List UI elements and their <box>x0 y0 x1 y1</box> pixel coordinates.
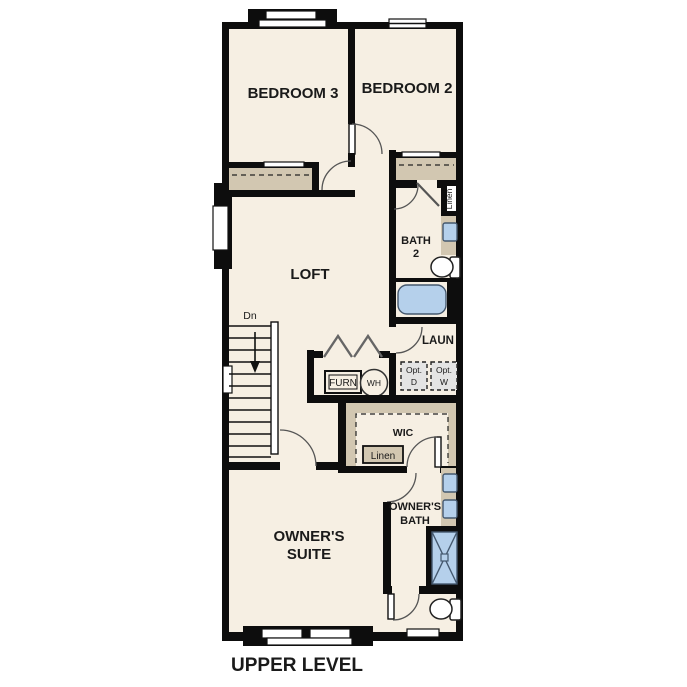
bedroom3-window-sill <box>259 20 326 27</box>
bedroom3-label: BEDROOM 3 <box>248 85 339 102</box>
bath2-label-line2: 2 <box>413 248 419 260</box>
bedroom2-closet-bypass-door <box>402 152 440 157</box>
bath2-label-line1: BATH <box>401 235 431 247</box>
wic-door-panel <box>435 437 441 467</box>
toilet-room-top-wall <box>419 586 463 594</box>
shower-drain <box>441 554 448 561</box>
wic-bottom-wall-left <box>338 466 407 473</box>
owners-suite-top-wall-left <box>222 462 280 470</box>
toilet-room-door-panel <box>388 594 394 619</box>
bedroom3-closet-side-wall <box>312 162 319 194</box>
stairs-window <box>223 366 232 393</box>
bedroom3-window <box>266 11 316 19</box>
owners-bath-sink-2 <box>443 500 457 518</box>
stairs-down-label: Dn <box>243 310 257 322</box>
bedroom3-bottom-wall <box>222 190 355 197</box>
bedroom3-closet <box>229 168 312 190</box>
toilet-room-window <box>407 629 439 637</box>
owners-bath-label-line1: OWNER'S <box>389 501 441 513</box>
bath2-top-wall-left <box>396 180 417 188</box>
optional-washer-label-line1: Opt. <box>436 365 452 375</box>
floor-plan-canvas: BEDROOM 3 BEDROOM 2 LOFT BATH 2 LAUN WIC… <box>0 0 687 687</box>
bath2-tub <box>398 285 446 314</box>
owners-toilet-bowl <box>430 599 452 619</box>
floor-plan: BEDROOM 3 BEDROOM 2 LOFT BATH 2 LAUN WIC… <box>0 0 687 687</box>
stair-rail <box>271 322 278 454</box>
linen-wic-label: Linen <box>371 451 395 462</box>
bedroom2-closet <box>396 158 456 180</box>
laundry-label: LAUN <box>422 335 454 347</box>
owners-suite-label-line1: OWNER'S <box>273 528 344 545</box>
bath2-sink <box>443 223 457 241</box>
optional-dryer-label-line2: D <box>411 377 417 387</box>
owners-suite-window-2 <box>310 629 350 638</box>
bedroom-divider-wall <box>348 29 355 124</box>
owners-suite-window-1 <box>262 629 302 638</box>
linen-bath2-label: Linen <box>444 188 454 209</box>
tub-surround <box>447 278 456 319</box>
owners-bath-sink-1 <box>443 474 457 492</box>
optional-dryer-label-line1: Opt. <box>406 365 422 375</box>
plan-title: UPPER LEVEL <box>231 655 363 676</box>
toilet-room-wall-stub <box>383 586 392 594</box>
water-heater-label: WH <box>367 378 381 388</box>
exterior-wall-left <box>222 22 229 641</box>
hall-bath2-wall <box>389 150 396 327</box>
bath2-toilet-bowl <box>431 257 453 277</box>
owners-suite-window-sill <box>267 638 352 645</box>
bifold-stub-left <box>312 351 323 358</box>
bedroom3-closet-bypass-door <box>264 162 304 167</box>
bedroom-divider-stub <box>348 153 355 167</box>
bedroom2-door-panel <box>349 124 355 154</box>
loft-label: LOFT <box>290 266 329 283</box>
wic-laundry-top-wall <box>307 395 463 403</box>
bedroom2-label: BEDROOM 2 <box>362 80 453 97</box>
owners-suite-label-line2: SUITE <box>287 546 331 563</box>
owners-bath-label-line2: BATH <box>400 515 430 527</box>
wic-label: WIC <box>393 427 414 439</box>
linen-bath2-bottom-wall <box>441 211 463 216</box>
suite-bath-divider-wall <box>383 502 391 594</box>
optional-washer-label-line2: W <box>440 377 448 387</box>
loft-window <box>213 206 228 250</box>
owners-suite-top-wall-right <box>316 462 346 470</box>
furnace-label: FURN <box>329 378 357 389</box>
tub-deck-wall <box>396 278 447 282</box>
bath2-bottom-wall <box>389 317 463 324</box>
